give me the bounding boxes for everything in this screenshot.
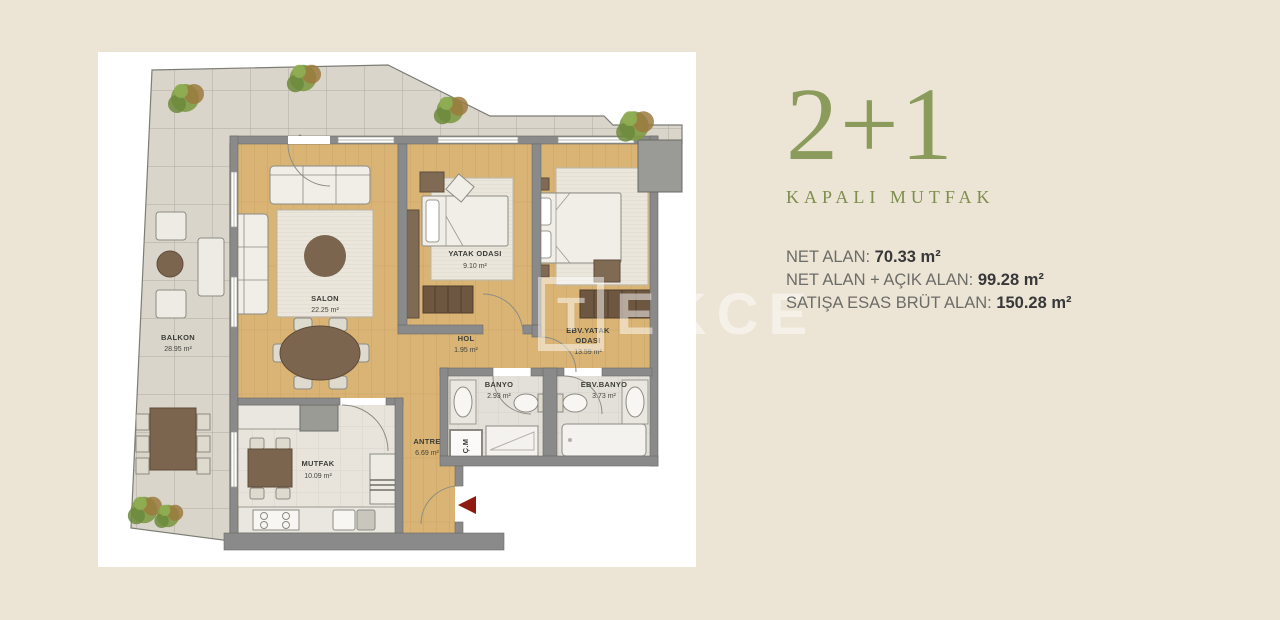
measurement-label: NET ALAN:: [786, 248, 875, 266]
page-subtitle: KAPALI MUTFAK: [786, 187, 1206, 208]
measurement-value: 150.28 m²: [996, 294, 1071, 312]
balkon-area: 28.95 m²: [164, 346, 192, 353]
floor-plan: Ç.M: [98, 52, 696, 567]
measurement-value: 70.33 m²: [875, 248, 941, 266]
page-title: 2+1: [786, 70, 1206, 179]
measurement-value: 99.28 m²: [978, 271, 1044, 289]
yatak-odasi-area: 9.10 m²: [463, 263, 487, 270]
area-measurements: NET ALAN: 70.33 m² NET ALAN + AÇIK ALAN:…: [786, 246, 1206, 315]
salon-area: 22.25 m²: [311, 307, 339, 314]
antre-label: ANTRE: [413, 437, 440, 446]
info-panel: 2+1 KAPALI MUTFAK NET ALAN: 70.33 m² NET…: [786, 70, 1206, 315]
ensuite-bed: [535, 193, 621, 263]
kitchen-counter-top: [238, 405, 338, 431]
ebv-banyo-label: EBV.BANYO: [581, 380, 628, 389]
measurement-row: NET ALAN + AÇIK ALAN: 99.28 m²: [786, 269, 1206, 292]
bedroom-bed: [422, 196, 508, 246]
banyo-area: 2.93 m²: [487, 393, 511, 400]
salon-tv-unit: [407, 210, 419, 318]
antre-area: 6.69 m²: [415, 450, 439, 457]
mutfak-area: 10.09 m²: [304, 473, 332, 480]
ebv-banyo-area: 3.73 m²: [592, 393, 616, 400]
kitchen-tall-cabinet: [370, 454, 396, 504]
ensuite-armchair: [594, 260, 620, 282]
mutfak-label: MUTFAK: [301, 459, 334, 468]
balcony-dining-set: [136, 408, 210, 474]
yatak-odasi-label: YATAK ODASI: [448, 249, 501, 258]
entrance-arrow: [458, 496, 476, 514]
measurement-row: SATIŞA ESAS BRÜT ALAN: 150.28 m²: [786, 292, 1206, 315]
ensuite-wardrobe: [580, 290, 650, 318]
shaft-block: [638, 140, 682, 192]
bedroom-wardrobe: [423, 286, 473, 313]
measurement-row: NET ALAN: 70.33 m²: [786, 246, 1206, 269]
ebv-yatak-label-1: EBV.YATAK: [566, 326, 610, 335]
kitchen-counter-bottom: [238, 507, 396, 533]
laundry-closet-label: Ç.M: [461, 439, 470, 454]
hol-area: 1.95 m²: [454, 347, 478, 354]
floor-plan-panel: Ç.M: [98, 52, 696, 567]
ebv-yatak-area: 13.59 m²: [574, 349, 602, 356]
measurement-label: SATIŞA ESAS BRÜT ALAN:: [786, 294, 996, 312]
bedroom-desk: [420, 172, 444, 192]
measurement-label: NET ALAN + AÇIK ALAN:: [786, 271, 978, 289]
balkon-label: BALKON: [161, 333, 195, 342]
salon-label: SALON: [311, 294, 339, 303]
salon-sofa-left: [235, 214, 268, 314]
hol-label: HOL: [458, 334, 475, 343]
banyo-label: BANYO: [485, 380, 514, 389]
ebv-yatak-label-2: ODASI: [575, 336, 600, 345]
